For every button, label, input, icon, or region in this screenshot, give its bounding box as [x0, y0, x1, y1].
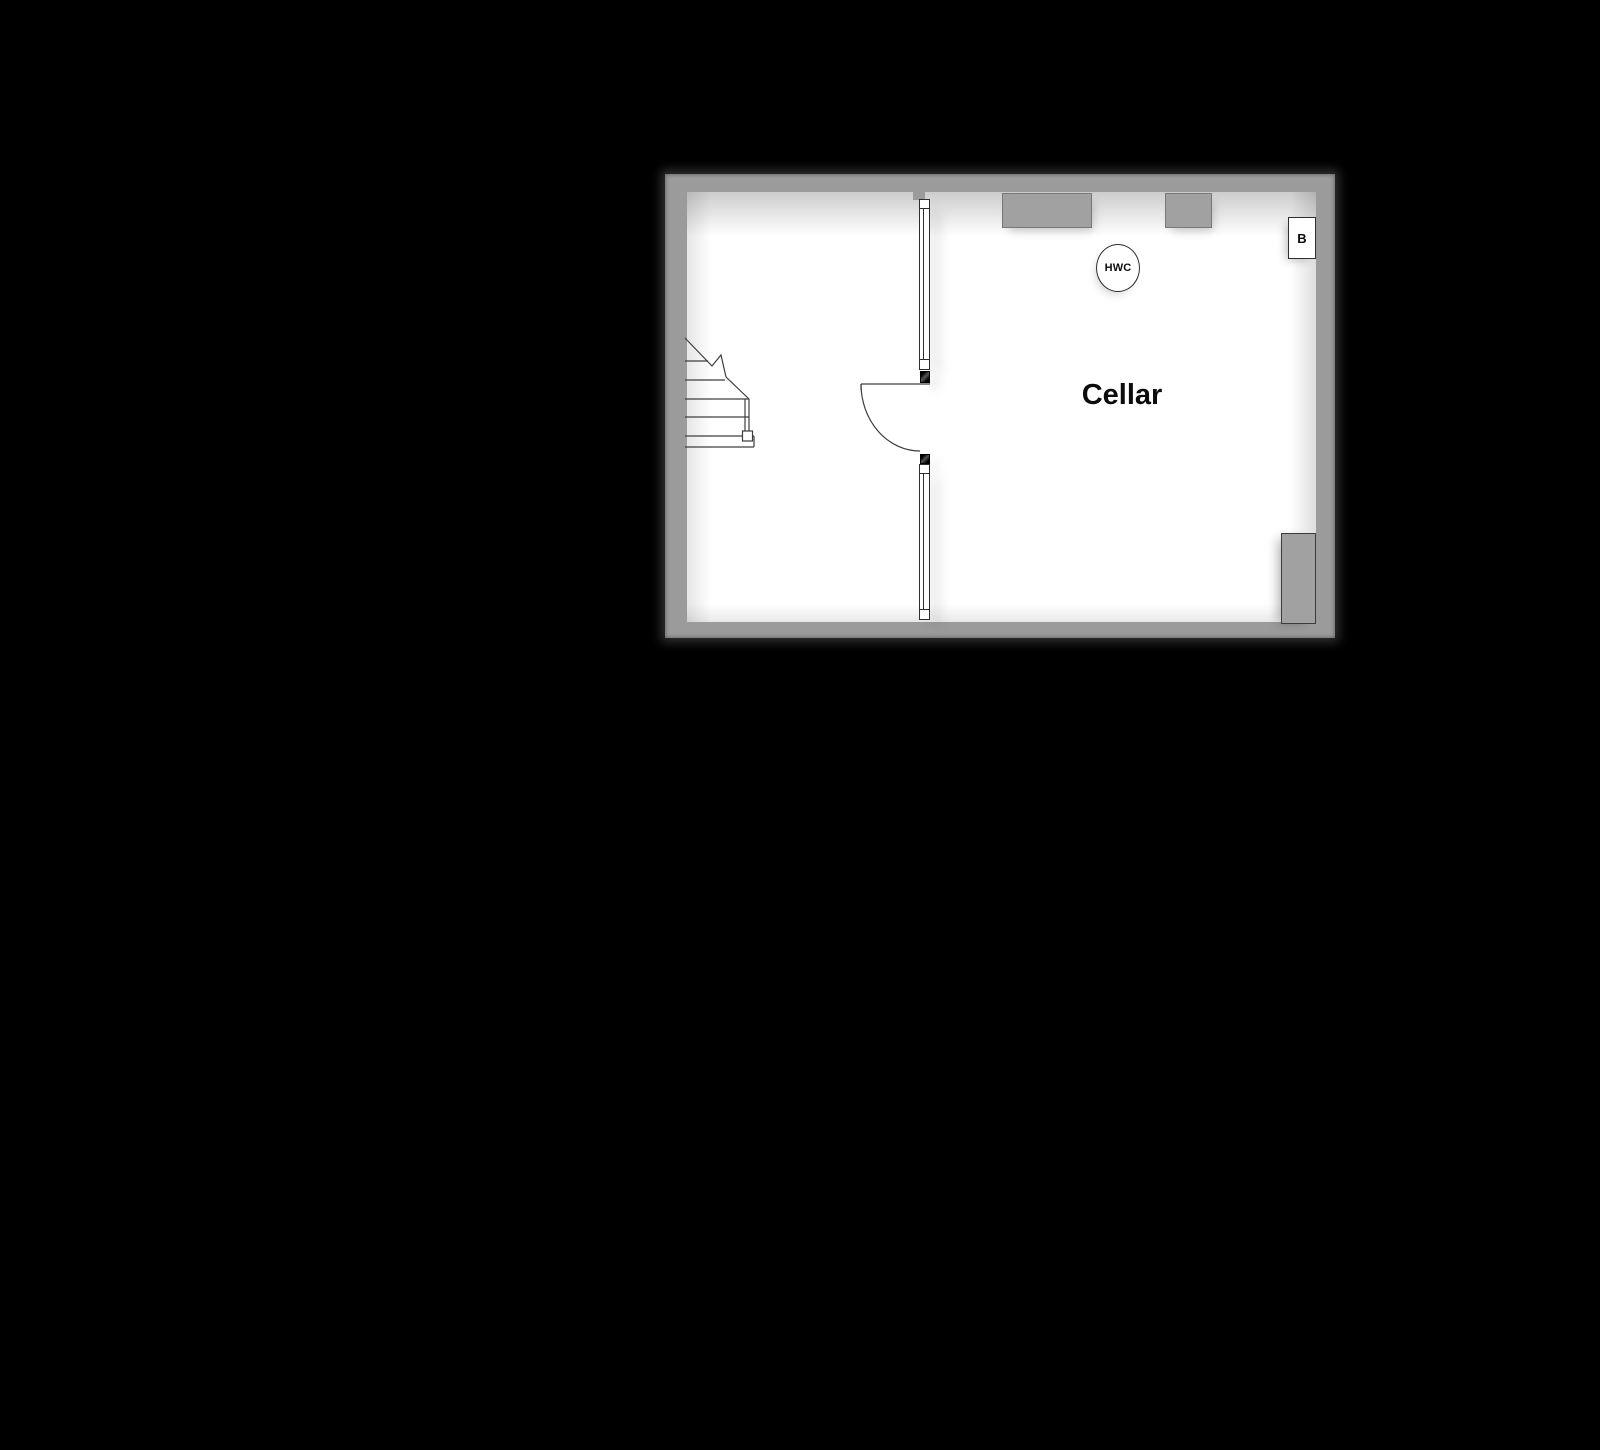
hot-water-cylinder-circle: HWC [1096, 244, 1140, 292]
floor-plan: B HWC Cellar [665, 174, 1335, 638]
stairs [685, 338, 754, 447]
stair-newel-post [743, 431, 753, 441]
boiler-label: B [1297, 231, 1306, 246]
partition-cap [920, 359, 929, 360]
boiler-box: B [1288, 217, 1316, 259]
partition-cap [920, 473, 929, 474]
partition-cap [920, 609, 929, 610]
page-background: B HWC Cellar [0, 0, 1600, 1450]
room-label: Cellar [1042, 378, 1202, 412]
partition-inner-line [923, 473, 924, 610]
wall-fixture-top-right [1165, 193, 1212, 228]
wall-fixture-top-left [1002, 193, 1092, 228]
partition-cap [920, 208, 929, 209]
door-jamb-upper [920, 371, 930, 383]
plan-linework [665, 174, 1335, 638]
door-swing-arc [861, 384, 920, 451]
partition-inner-line [923, 208, 924, 360]
door-jamb-lower [920, 454, 930, 464]
wall-fixture-bottom-right [1281, 533, 1316, 624]
partition-wall-upper [919, 199, 930, 370]
door-symbol [861, 384, 930, 451]
stair-break-line [685, 338, 749, 399]
partition-wall-lower [919, 464, 930, 620]
hwc-label: HWC [1105, 262, 1132, 274]
